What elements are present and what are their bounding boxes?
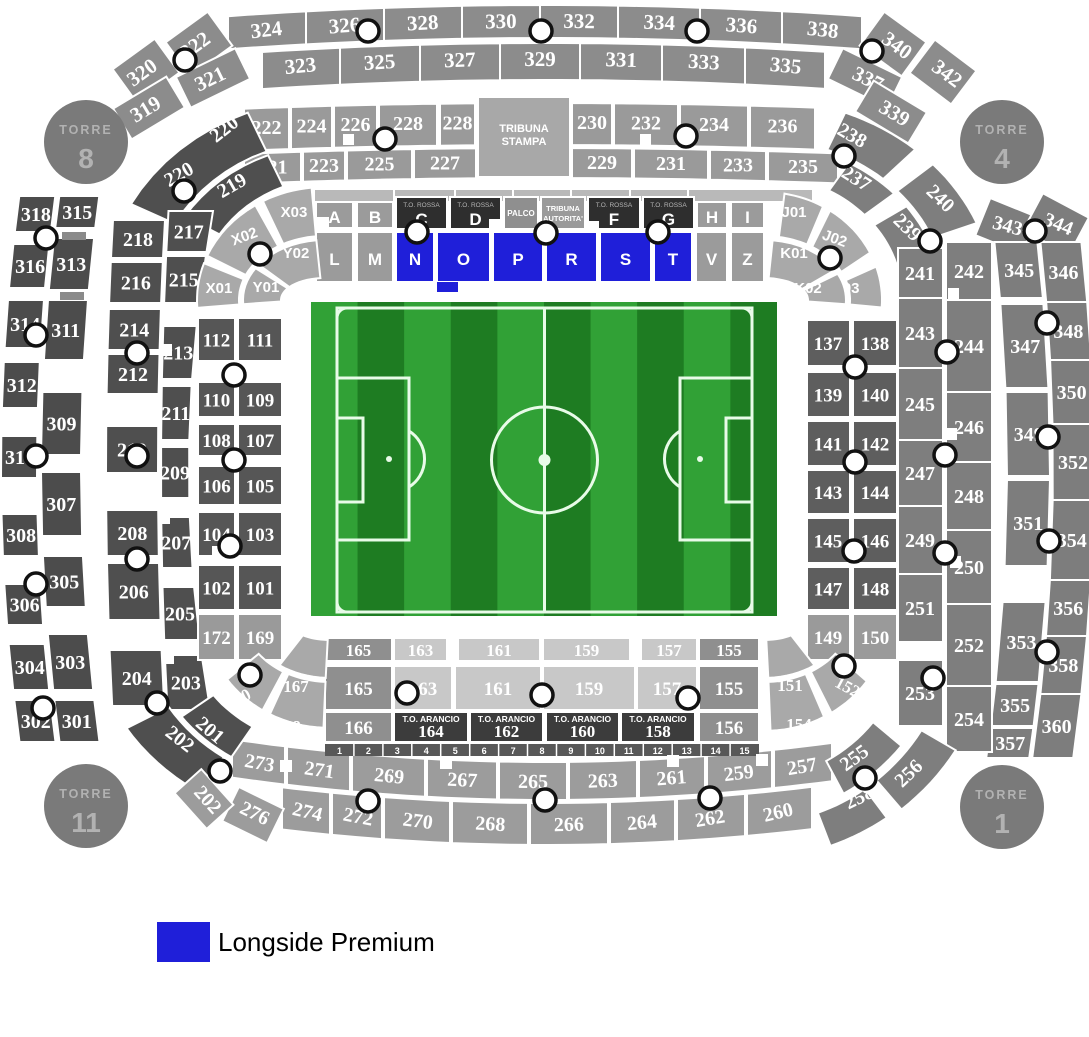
svg-text:328: 328 (406, 10, 439, 36)
svg-text:252: 252 (954, 635, 984, 657)
svg-text:162: 162 (494, 722, 520, 741)
svg-text:13: 13 (682, 746, 692, 756)
svg-text:163: 163 (408, 641, 434, 660)
svg-text:315: 315 (62, 202, 92, 224)
svg-text:206: 206 (119, 582, 149, 604)
svg-text:J01: J01 (781, 204, 806, 221)
svg-text:H: H (706, 208, 718, 227)
svg-text:S: S (620, 250, 631, 269)
svg-text:Longside Premium: Longside Premium (218, 927, 435, 957)
svg-text:249: 249 (905, 530, 935, 552)
svg-text:215: 215 (169, 270, 199, 292)
svg-text:157: 157 (656, 641, 682, 660)
svg-text:233: 233 (723, 154, 753, 176)
svg-text:167: 167 (283, 677, 309, 696)
svg-text:270: 270 (401, 809, 434, 835)
svg-text:A: A (328, 208, 340, 227)
svg-text:154: 154 (786, 715, 812, 734)
svg-text:107: 107 (246, 431, 275, 452)
svg-text:254: 254 (954, 709, 984, 731)
svg-text:165: 165 (344, 679, 373, 700)
svg-text:5: 5 (453, 746, 458, 756)
svg-text:329: 329 (524, 47, 556, 71)
svg-text:N: N (409, 250, 421, 269)
svg-text:3: 3 (395, 746, 400, 756)
svg-text:Z: Z (742, 250, 752, 269)
svg-text:305: 305 (49, 572, 79, 594)
svg-text:B: B (369, 208, 381, 227)
svg-text:111: 111 (247, 331, 273, 352)
svg-text:309: 309 (47, 414, 77, 436)
svg-text:234: 234 (699, 114, 729, 136)
svg-text:208: 208 (117, 523, 147, 545)
svg-text:160: 160 (570, 722, 596, 741)
svg-text:102: 102 (202, 579, 231, 600)
svg-text:12: 12 (653, 746, 663, 756)
svg-text:150: 150 (861, 628, 890, 649)
svg-text:261: 261 (656, 766, 688, 790)
svg-text:TRIBUNA: TRIBUNA (546, 204, 580, 213)
svg-text:149: 149 (814, 628, 843, 649)
svg-text:168: 168 (275, 717, 301, 736)
svg-text:236: 236 (768, 116, 798, 138)
svg-text:140: 140 (861, 386, 890, 407)
svg-text:251: 251 (905, 598, 935, 620)
svg-text:139: 139 (814, 386, 843, 407)
svg-text:217: 217 (174, 222, 204, 244)
svg-text:269: 269 (373, 764, 405, 789)
svg-text:8: 8 (539, 746, 544, 756)
svg-text:247: 247 (905, 463, 935, 485)
svg-text:242: 242 (954, 261, 984, 283)
svg-text:D: D (469, 210, 481, 229)
svg-text:142: 142 (861, 435, 890, 456)
svg-text:352: 352 (1058, 452, 1088, 474)
svg-text:264: 264 (626, 810, 658, 835)
svg-text:338: 338 (806, 16, 840, 43)
svg-text:Y01: Y01 (253, 279, 280, 296)
svg-text:209: 209 (160, 463, 190, 485)
svg-text:267: 267 (447, 769, 478, 793)
svg-text:335: 335 (769, 52, 803, 79)
svg-text:241: 241 (905, 263, 935, 285)
svg-text:155: 155 (716, 641, 742, 660)
svg-text:105: 105 (246, 477, 275, 498)
svg-text:246: 246 (954, 417, 984, 439)
svg-text:2: 2 (366, 746, 371, 756)
svg-text:110: 110 (203, 391, 230, 412)
svg-text:207: 207 (161, 533, 191, 555)
svg-text:M: M (368, 250, 382, 269)
svg-text:166: 166 (344, 718, 373, 739)
svg-text:11: 11 (71, 807, 101, 838)
svg-text:307: 307 (46, 494, 76, 516)
svg-text:351: 351 (1013, 513, 1043, 535)
svg-text:1: 1 (337, 746, 342, 756)
svg-text:204: 204 (122, 668, 152, 690)
svg-text:R: R (565, 250, 577, 269)
svg-text:248: 248 (954, 486, 984, 508)
svg-text:10: 10 (595, 746, 605, 756)
svg-text:271: 271 (303, 757, 336, 783)
svg-text:223: 223 (309, 155, 339, 177)
svg-text:I: I (745, 208, 750, 227)
svg-text:9: 9 (568, 746, 573, 756)
svg-text:T.O. ROSSA: T.O. ROSSA (650, 202, 687, 209)
svg-text:11: 11 (624, 746, 634, 756)
svg-text:Y02: Y02 (283, 245, 310, 262)
svg-text:4: 4 (994, 143, 1010, 174)
svg-text:304: 304 (15, 657, 45, 679)
svg-text:X03: X03 (281, 204, 308, 221)
svg-text:226: 226 (341, 114, 371, 136)
svg-text:V: V (706, 250, 718, 269)
svg-text:346: 346 (1049, 262, 1079, 284)
svg-text:155: 155 (715, 679, 744, 700)
svg-text:327: 327 (444, 47, 476, 72)
svg-text:316: 316 (15, 256, 45, 278)
svg-text:331: 331 (605, 47, 637, 72)
svg-text:T.O. ROSSA: T.O. ROSSA (596, 202, 633, 209)
svg-text:TORRE: TORRE (59, 123, 113, 137)
svg-text:268: 268 (475, 813, 506, 837)
svg-text:6: 6 (482, 746, 487, 756)
svg-text:325: 325 (363, 49, 396, 75)
svg-text:333: 333 (687, 49, 720, 75)
svg-text:231: 231 (656, 153, 686, 175)
svg-text:158: 158 (645, 722, 671, 741)
svg-text:353: 353 (1007, 632, 1037, 654)
svg-text:8: 8 (78, 143, 94, 174)
svg-text:216: 216 (121, 273, 151, 295)
svg-text:313: 313 (56, 254, 86, 276)
svg-text:229: 229 (587, 152, 617, 174)
svg-text:243: 243 (905, 323, 935, 345)
svg-text:112: 112 (203, 331, 230, 352)
svg-text:306: 306 (10, 595, 40, 617)
svg-text:161: 161 (484, 679, 513, 700)
svg-text:K01: K01 (780, 245, 808, 262)
svg-text:360: 360 (1042, 716, 1072, 738)
svg-text:347: 347 (1010, 336, 1040, 358)
svg-text:169: 169 (246, 628, 275, 649)
svg-text:109: 109 (246, 391, 275, 412)
svg-text:212: 212 (118, 364, 148, 386)
svg-text:STAMPA: STAMPA (502, 136, 547, 148)
svg-text:1: 1 (994, 808, 1010, 839)
svg-text:227: 227 (430, 153, 460, 175)
svg-text:334: 334 (643, 10, 676, 35)
svg-text:336: 336 (725, 12, 758, 38)
svg-text:138: 138 (861, 334, 890, 355)
svg-text:K02: K02 (794, 280, 822, 297)
svg-text:T.O. ROSSA: T.O. ROSSA (403, 202, 440, 209)
svg-text:L: L (329, 250, 339, 269)
svg-text:312: 312 (7, 375, 37, 397)
svg-text:263: 263 (587, 770, 618, 793)
svg-text:245: 245 (905, 394, 935, 416)
svg-text:259: 259 (723, 761, 755, 787)
svg-text:14: 14 (711, 746, 721, 756)
svg-text:O: O (457, 250, 470, 269)
svg-text:225: 225 (365, 154, 395, 176)
svg-text:TRIBUNA: TRIBUNA (499, 123, 549, 135)
svg-text:161: 161 (486, 641, 512, 660)
svg-text:T: T (668, 250, 679, 269)
svg-text:151: 151 (777, 676, 803, 695)
svg-text:345: 345 (1004, 260, 1034, 282)
svg-text:308: 308 (6, 525, 36, 547)
svg-text:TORRE: TORRE (975, 788, 1029, 802)
svg-text:101: 101 (246, 579, 275, 600)
svg-text:147: 147 (814, 580, 843, 601)
svg-text:356: 356 (1053, 598, 1083, 620)
svg-text:230: 230 (577, 112, 607, 134)
svg-text:205: 205 (165, 604, 195, 626)
svg-text:232: 232 (631, 113, 661, 135)
svg-text:T.O. ROSSA: T.O. ROSSA (457, 202, 494, 209)
svg-text:323: 323 (283, 52, 317, 79)
svg-text:311: 311 (51, 320, 80, 342)
svg-text:301: 301 (62, 711, 92, 733)
svg-text:357: 357 (995, 733, 1025, 755)
svg-text:159: 159 (575, 679, 604, 700)
svg-text:X01: X01 (206, 280, 233, 297)
svg-text:108: 108 (202, 431, 231, 452)
svg-text:224: 224 (297, 115, 327, 137)
svg-text:266: 266 (554, 814, 585, 837)
svg-text:228: 228 (443, 113, 473, 135)
svg-text:159: 159 (574, 641, 600, 660)
svg-text:106: 106 (202, 477, 231, 498)
svg-text:214: 214 (119, 320, 149, 342)
svg-text:332: 332 (563, 9, 595, 33)
svg-text:141: 141 (814, 435, 843, 456)
svg-text:7: 7 (511, 746, 516, 756)
svg-text:330: 330 (485, 9, 517, 34)
svg-text:211: 211 (161, 403, 190, 425)
svg-text:324: 324 (249, 16, 283, 43)
svg-text:303: 303 (55, 652, 85, 674)
svg-text:4: 4 (424, 746, 429, 756)
svg-text:228: 228 (393, 113, 423, 135)
svg-text:15: 15 (739, 746, 749, 756)
svg-text:235: 235 (788, 156, 818, 178)
svg-text:350: 350 (1057, 382, 1087, 404)
svg-text:TORRE: TORRE (975, 123, 1029, 137)
svg-text:203: 203 (171, 673, 201, 695)
svg-text:156: 156 (715, 718, 744, 739)
svg-text:F: F (609, 210, 619, 229)
svg-text:144: 144 (861, 483, 890, 504)
svg-text:218: 218 (123, 229, 153, 251)
svg-text:137: 137 (814, 334, 843, 355)
svg-text:TORRE: TORRE (59, 787, 113, 801)
svg-text:143: 143 (814, 483, 843, 504)
svg-text:318: 318 (21, 204, 51, 226)
svg-text:P: P (512, 250, 523, 269)
svg-text:145: 145 (814, 532, 843, 553)
svg-text:172: 172 (202, 628, 231, 649)
svg-text:355: 355 (1000, 695, 1030, 717)
svg-text:103: 103 (246, 525, 275, 546)
svg-text:164: 164 (418, 722, 444, 741)
svg-text:148: 148 (861, 580, 890, 601)
svg-text:165: 165 (346, 641, 372, 660)
svg-text:PALCO: PALCO (507, 209, 534, 218)
